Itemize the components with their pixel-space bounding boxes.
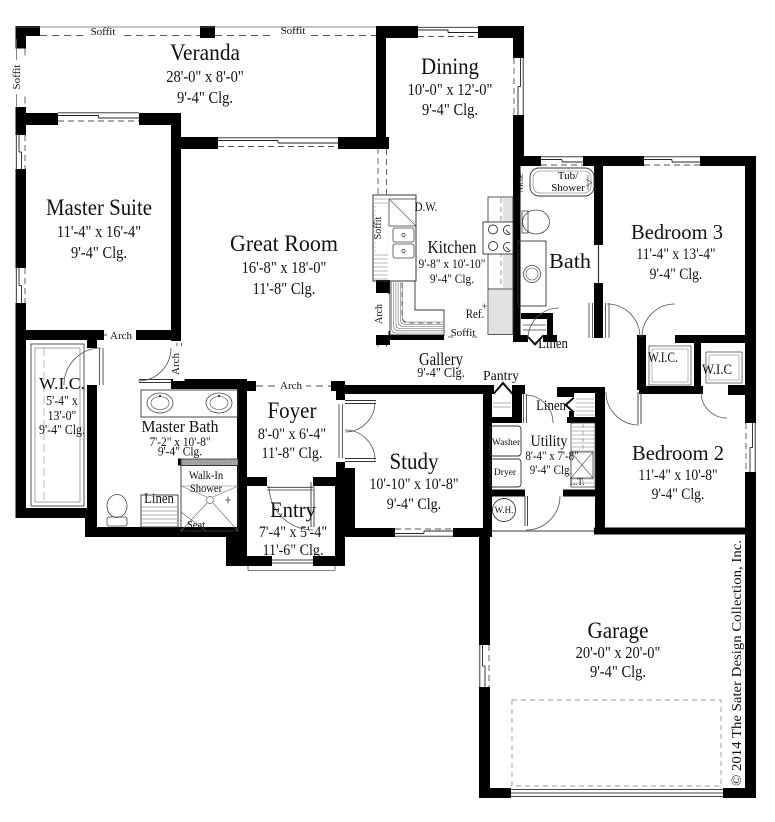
svg-text:D.W.: D.W. — [415, 200, 438, 214]
svg-text:10'-10" x 10'-8": 10'-10" x 10'-8" — [369, 476, 458, 493]
svg-text:Bedroom 2: Bedroom 2 — [632, 441, 724, 465]
svg-text:Seat: Seat — [187, 520, 205, 531]
svg-text:13'-0": 13'-0" — [48, 408, 77, 423]
svg-text:Niche: Niche — [516, 173, 525, 193]
svg-text:Ref.: Ref. — [466, 307, 485, 321]
svg-text:28'-0" x 8'-0": 28'-0" x 8'-0" — [166, 67, 244, 86]
svg-text:8'-4" x 7'-8": 8'-4" x 7'-8" — [525, 449, 578, 463]
svg-text:Bath: Bath — [549, 249, 592, 273]
svg-text:Bedroom 3: Bedroom 3 — [631, 220, 723, 244]
svg-text:W.H.: W.H. — [495, 505, 514, 515]
svg-text:Shower: Shower — [190, 481, 222, 495]
svg-text:Pantry: Pantry — [483, 368, 519, 383]
svg-text:9'-4" Clg.: 9'-4" Clg. — [158, 444, 202, 459]
svg-text:Soffit: Soffit — [281, 25, 306, 37]
svg-text:Linen: Linen — [536, 398, 566, 414]
svg-text:Shower: Shower — [551, 182, 585, 194]
svg-text:11'-8" Clg.: 11'-8" Clg. — [262, 445, 323, 462]
svg-text:Dryer: Dryer — [494, 468, 517, 478]
svg-text:© 2014 The Sater Design Colle: © 2014 The Sater Design Collection, Inc. — [729, 540, 744, 786]
svg-text:9'-4" Clg.: 9'-4" Clg. — [652, 486, 705, 503]
svg-text:Walk-In: Walk-In — [189, 468, 223, 482]
svg-text:Study: Study — [390, 449, 439, 474]
svg-text:9'-4" Clg.: 9'-4" Clg. — [417, 366, 465, 381]
svg-text:11'-4" x 16'-4": 11'-4" x 16'-4" — [57, 222, 141, 241]
svg-text:9'-4" Clg.: 9'-4" Clg. — [71, 243, 127, 262]
svg-text:11'-6" Clg.: 11'-6" Clg. — [263, 542, 324, 559]
svg-text:L.T.: L.T. — [570, 477, 585, 487]
svg-text:Kitchen: Kitchen — [428, 237, 477, 257]
svg-text:W.I.C.: W.I.C. — [648, 350, 678, 366]
svg-text:9'-4" Clg.: 9'-4" Clg. — [650, 266, 703, 283]
svg-text:Washer: Washer — [492, 438, 521, 448]
svg-text:9'-4" Clg.: 9'-4" Clg. — [39, 422, 85, 437]
svg-text:Arch: Arch — [170, 353, 182, 375]
svg-text:9'-4" Clg.: 9'-4" Clg. — [590, 662, 646, 681]
svg-text:Linen: Linen — [538, 336, 568, 352]
svg-text:20'-0" x 20'-0": 20'-0" x 20'-0" — [576, 643, 661, 662]
svg-text:Soffit: Soffit — [373, 216, 384, 239]
svg-text:Dining: Dining — [421, 54, 479, 79]
svg-text:Great Room: Great Room — [230, 231, 338, 256]
svg-text:16'-8" x 18'-0": 16'-8" x 18'-0" — [242, 258, 327, 277]
svg-text:Foyer: Foyer — [268, 398, 317, 423]
svg-text:W.I.C.: W.I.C. — [39, 374, 85, 393]
svg-text:11'-8" Clg.: 11'-8" Clg. — [253, 279, 316, 298]
svg-text:9'-4" Clg.: 9'-4" Clg. — [177, 88, 233, 107]
svg-text:9'-4" Clg.: 9'-4" Clg. — [387, 496, 441, 513]
svg-text:9'-4" Clg.: 9'-4" Clg. — [530, 463, 573, 477]
svg-text:Arch: Arch — [374, 304, 385, 324]
svg-text:Garage: Garage — [588, 618, 649, 643]
svg-text:8'-0" x 6'-4": 8'-0" x 6'-4" — [258, 426, 326, 443]
svg-text:Arch: Arch — [110, 330, 132, 342]
svg-text:7'-4" x 5'-4": 7'-4" x 5'-4" — [259, 524, 327, 541]
svg-text:Soffit: Soffit — [451, 327, 476, 339]
svg-text:Tub/: Tub/ — [558, 170, 579, 182]
svg-text:11'-4" x 10'-8": 11'-4" x 10'-8" — [638, 467, 717, 484]
svg-text:5'-4" x: 5'-4" x — [46, 393, 78, 408]
svg-text:11'-4" x 13'-4": 11'-4" x 13'-4" — [636, 246, 715, 263]
svg-text:Utility: Utility — [531, 433, 568, 450]
svg-text:Soffit: Soffit — [91, 26, 116, 38]
svg-text:Linen: Linen — [144, 491, 174, 507]
svg-text:W.I.C: W.I.C — [702, 362, 732, 378]
svg-text:Arch: Arch — [280, 380, 302, 392]
svg-text:9'-8" x 10'-10": 9'-8" x 10'-10" — [419, 256, 486, 271]
svg-text:Veranda: Veranda — [170, 40, 240, 65]
svg-text:Entry: Entry — [270, 497, 316, 522]
svg-text:9'-4" Clg.: 9'-4" Clg. — [430, 271, 474, 286]
svg-text:9'-4" Clg.: 9'-4" Clg. — [422, 100, 478, 119]
svg-text:Soffit: Soffit — [11, 65, 23, 90]
svg-text:Master Suite: Master Suite — [46, 195, 152, 220]
svg-text:10'-0" x 12'-0": 10'-0" x 12'-0" — [408, 80, 493, 99]
